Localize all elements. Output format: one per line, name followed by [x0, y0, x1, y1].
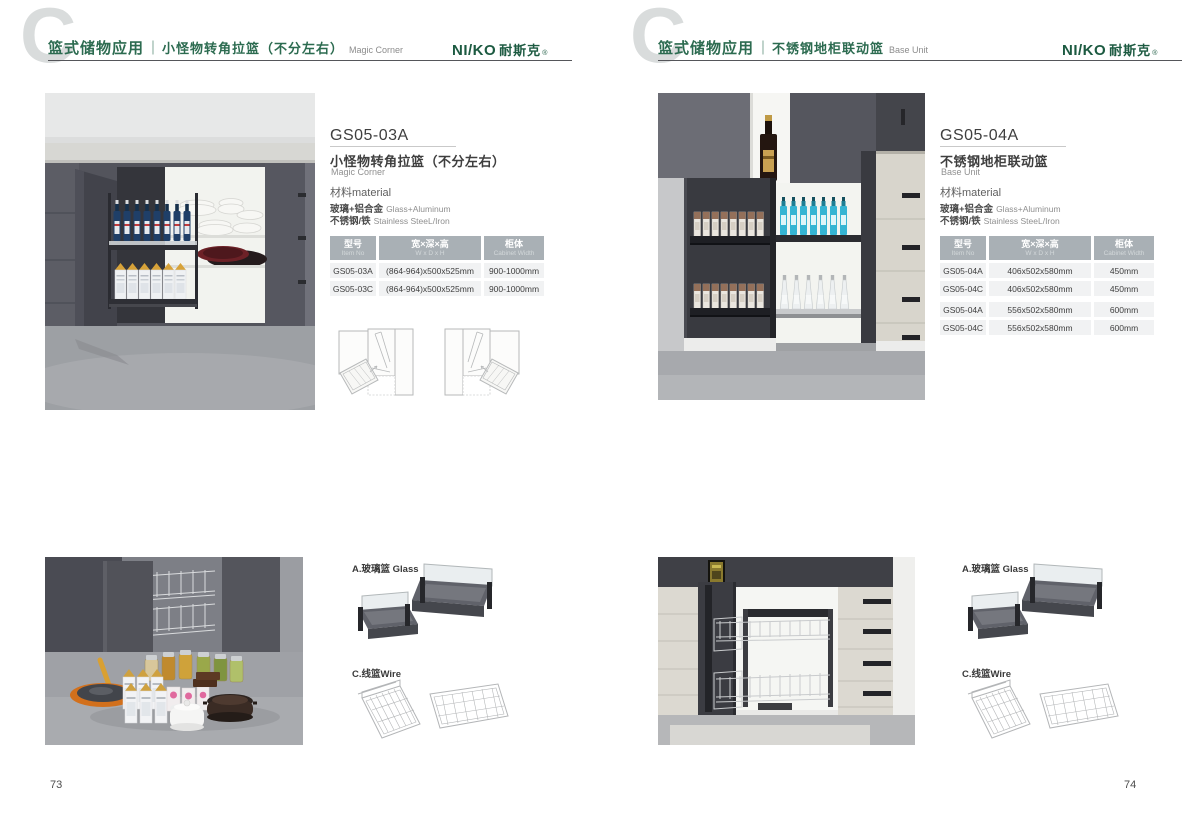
- col-dimensions: 宽×深×高W x D x H: [379, 236, 481, 260]
- col-item-no: 型号Item No: [330, 236, 376, 260]
- header-divider: ｜: [756, 40, 770, 56]
- material-title: 材料material: [940, 184, 1001, 200]
- glass-basket-image: [350, 556, 498, 648]
- table-row: GS05-03C (864-964)x500x525mm 900-1000mm: [330, 281, 544, 296]
- material-row-2: 不锈钢/铁Stainless SteeL/Iron: [330, 211, 450, 229]
- spec-table-right: 型号Item No 宽×深×高W x D x H 柜体Cabinet Width…: [940, 236, 1154, 335]
- table-row: GS05-04A 406x502x580mm 450mm: [940, 263, 1154, 278]
- table-row: GS05-04C 406x502x580mm 450mm: [940, 281, 1154, 296]
- header-rule: [658, 60, 1182, 61]
- wire-basket-image: [348, 664, 513, 749]
- corner-diagram-left-variant: [337, 322, 415, 402]
- page-header-right: 篮式储物应用｜不锈钢地柜联动篮Base Unit: [658, 37, 928, 58]
- logo-wordmark: NI/KO: [452, 42, 496, 59]
- page-number-left: 73: [50, 779, 62, 791]
- col-cabinet-width: 柜体Cabinet Width: [484, 236, 544, 260]
- header-title-cn: 小怪物转角拉篮（不分左右）: [162, 41, 344, 56]
- product-name-en: Base Unit: [941, 167, 980, 177]
- header-title-cn: 不锈钢地柜联动篮: [772, 41, 884, 56]
- header-category: 篮式储物应用: [48, 40, 144, 57]
- col-cabinet-width: 柜体Cabinet Width: [1094, 236, 1154, 260]
- material-2-en: Stainless SteeL/Iron: [984, 216, 1060, 226]
- col-item-no: 型号Item No: [940, 236, 986, 260]
- logo-wordmark: NI/KO: [1062, 42, 1106, 59]
- nisko-logo: NI/KO 耐斯克 ®: [452, 40, 547, 59]
- product-code: GS05-04A: [940, 127, 1019, 145]
- material-title: 材料material: [330, 184, 391, 200]
- logo-chinese: 耐斯克: [1109, 40, 1151, 59]
- page-header-left: 篮式储物应用｜小怪物转角拉篮（不分左右）Magic Corner: [48, 37, 403, 58]
- product-code-rule: [940, 146, 1066, 147]
- catalog-spread: C 篮式储物应用｜小怪物转角拉篮（不分左右）Magic Corner NI/KO…: [0, 0, 1200, 820]
- material-2-cn: 不锈钢/铁: [940, 216, 981, 227]
- header-title-en: Base Unit: [889, 45, 928, 55]
- material-2-en: Stainless SteeL/Iron: [374, 216, 450, 226]
- table-row: GS05-04A 556x502x580mm 600mm: [940, 302, 1154, 317]
- header-category: 篮式储物应用: [658, 40, 754, 57]
- nisko-logo: NI/KO 耐斯克 ®: [1062, 40, 1157, 59]
- logo-chinese: 耐斯克: [499, 40, 541, 59]
- table-row: GS05-04C 556x502x580mm 600mm: [940, 320, 1154, 335]
- header-divider: ｜: [146, 40, 160, 56]
- page-number-right: 74: [1124, 779, 1136, 791]
- spec-table-header: 型号Item No 宽×深×高W x D x H 柜体Cabinet Width: [330, 236, 544, 260]
- table-row: GS05-03A (864-964)x500x525mm 900-1000mm: [330, 263, 544, 278]
- product-code-rule: [330, 146, 456, 147]
- photo-corner-wire-baskets: [45, 557, 303, 745]
- spec-table-header: 型号Item No 宽×深×高W x D x H 柜体Cabinet Width: [940, 236, 1154, 260]
- photo-base-unit-wire-baskets: [658, 557, 915, 745]
- material-row-2: 不锈钢/铁Stainless SteeL/Iron: [940, 211, 1060, 229]
- wire-basket-image: [958, 664, 1123, 749]
- product-name-en: Magic Corner: [331, 167, 385, 177]
- photo-base-unit-cabinet: [658, 93, 925, 400]
- material-2-cn: 不锈钢/铁: [330, 216, 371, 227]
- photo-magic-corner-cabinet: [45, 93, 315, 410]
- glass-basket-image: [960, 556, 1108, 648]
- corner-diagram-right-variant: [443, 322, 521, 402]
- col-dimensions: 宽×深×高W x D x H: [989, 236, 1091, 260]
- spec-table-left: 型号Item No 宽×深×高W x D x H 柜体Cabinet Width…: [330, 236, 544, 296]
- header-title-en: Magic Corner: [349, 45, 403, 55]
- product-code: GS05-03A: [330, 127, 409, 145]
- registered-mark: ®: [1152, 50, 1157, 57]
- registered-mark: ®: [542, 50, 547, 57]
- header-rule: [48, 60, 572, 61]
